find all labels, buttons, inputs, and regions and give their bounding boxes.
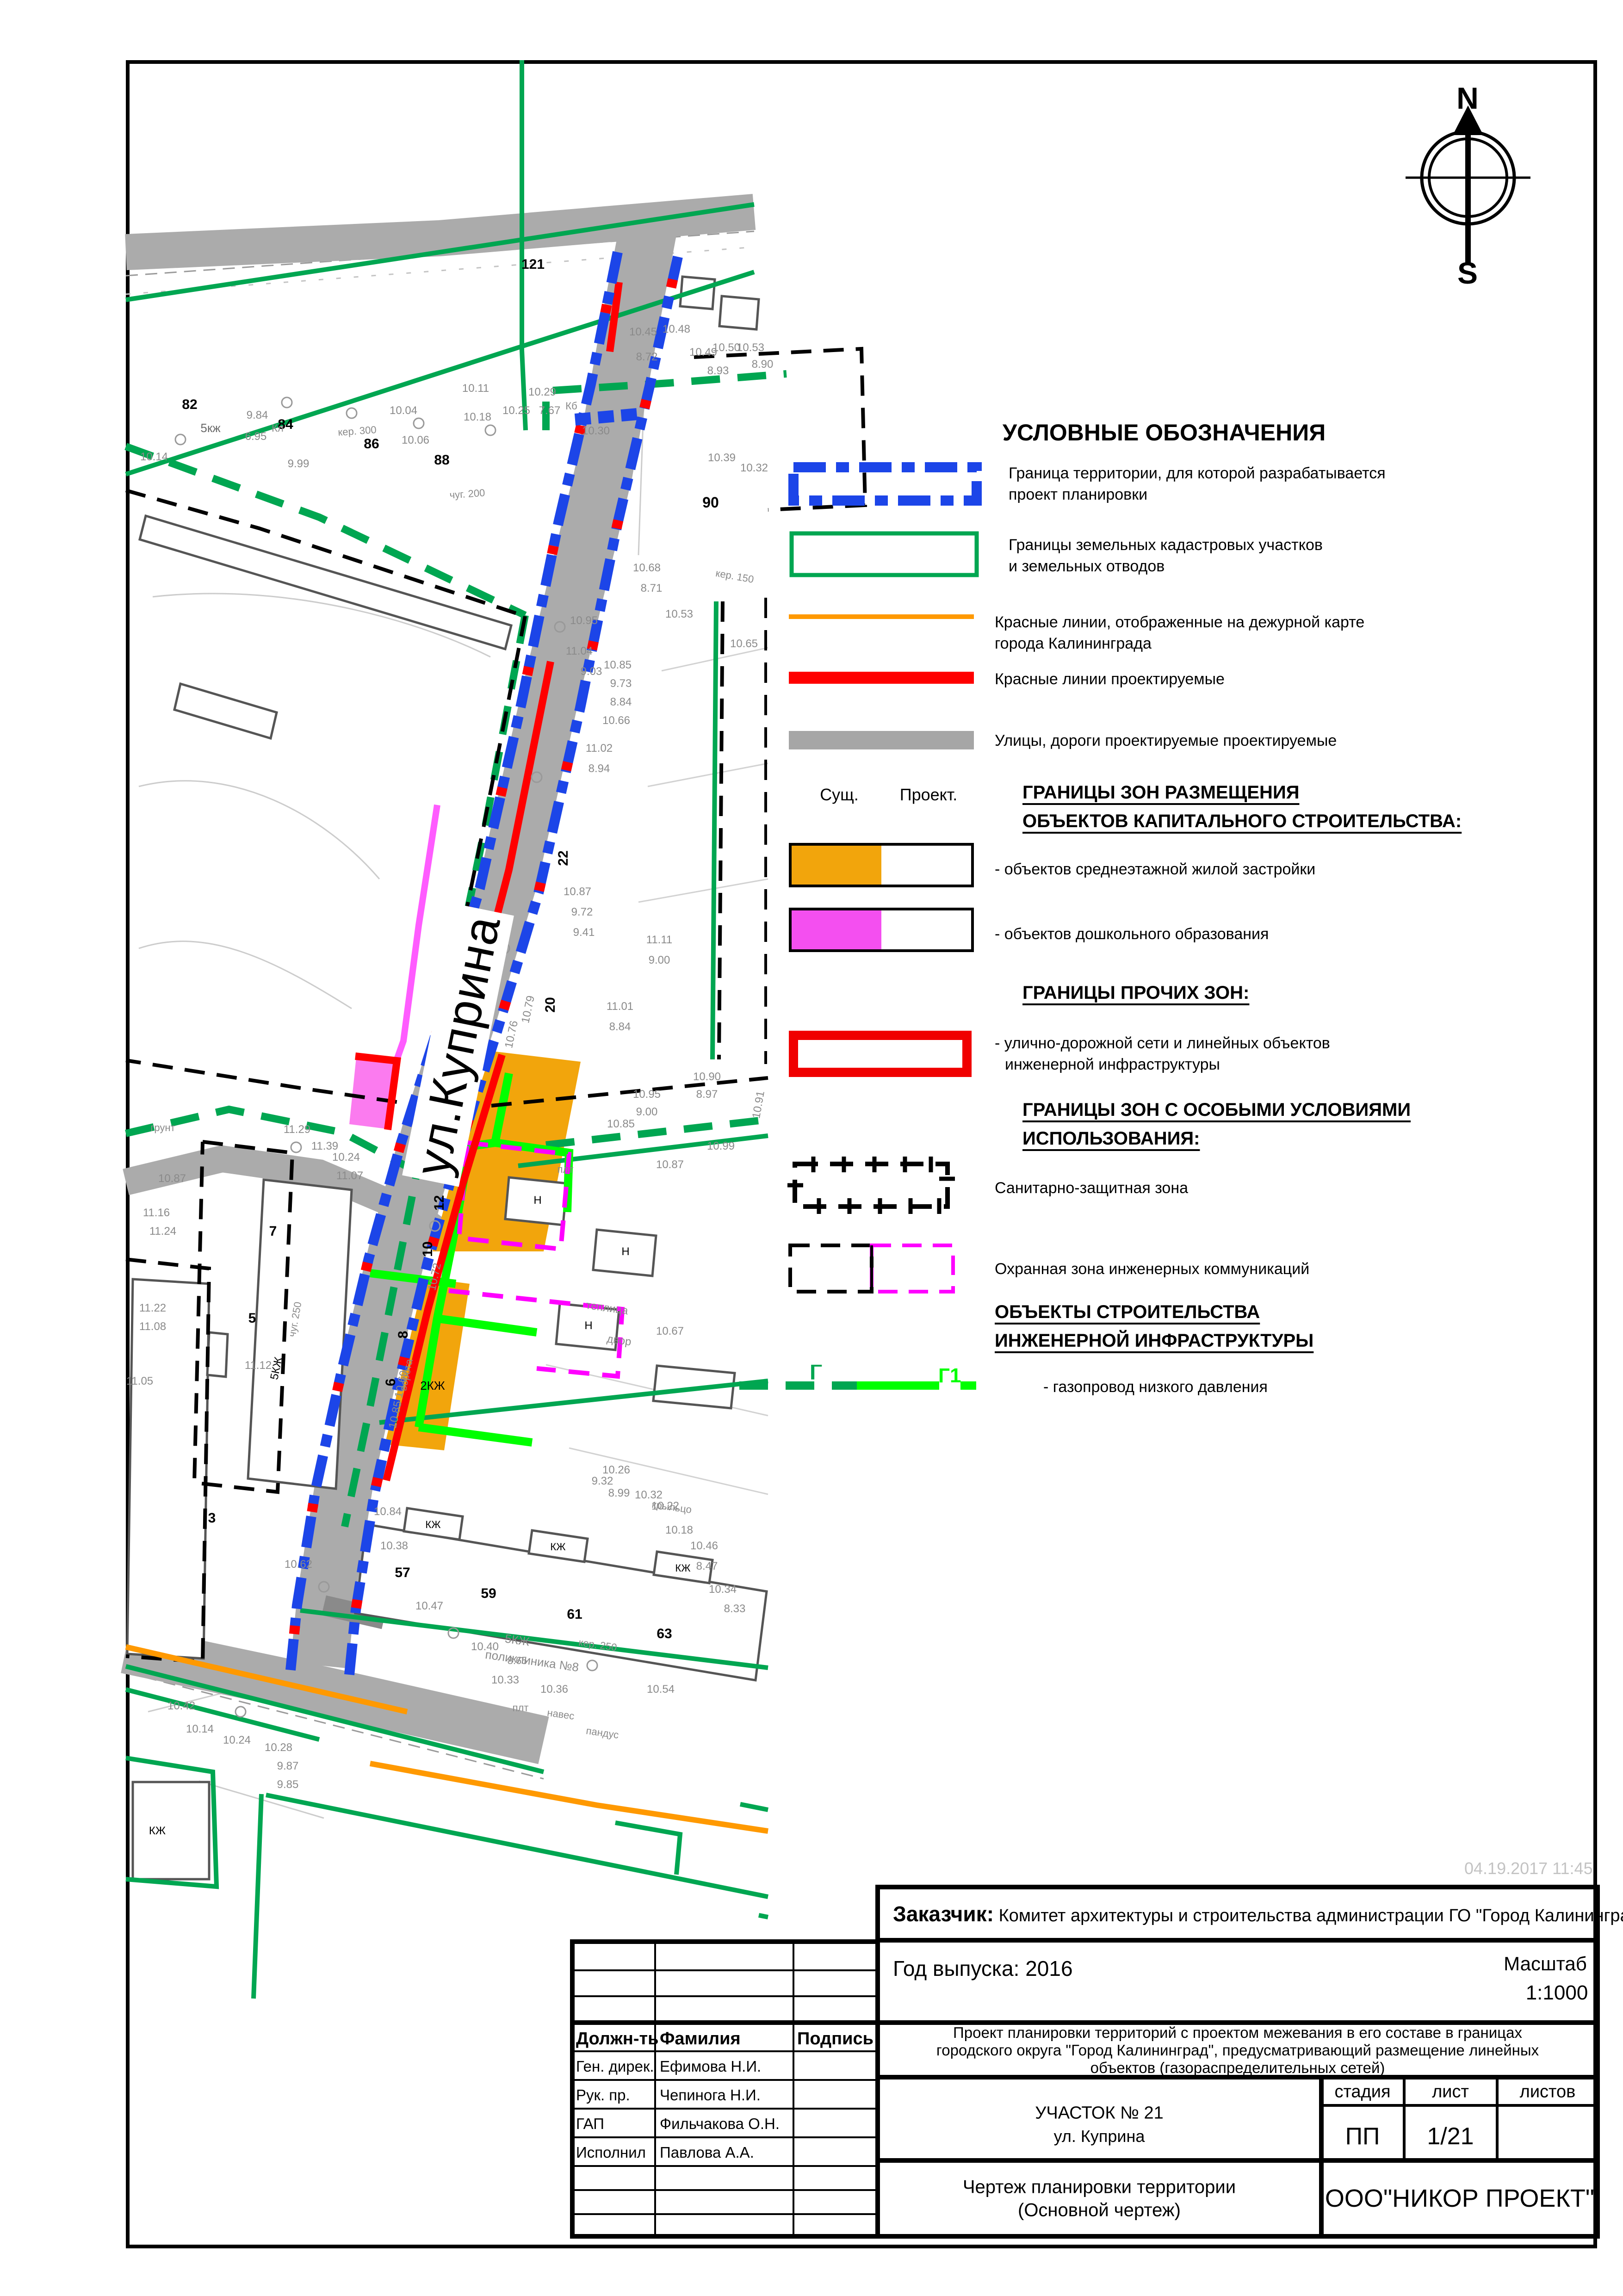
stage-header: стадия [1334,2082,1390,2102]
map-label: 10.90 [693,1071,721,1083]
customer-value: Комитет архитектуры и строительства адми… [999,1906,1623,1925]
legend-section-other: ГРАНИЦЫ ПРОЧИХ ЗОН: [1022,978,1249,1007]
map-label: 11.07 [336,1170,363,1182]
map-label: 8.33 [724,1603,746,1615]
map-label: 8.93 [707,365,729,377]
map-label: 11.01 [607,1001,633,1012]
plot-timestamp: 04.19.2017 11:45 [1464,1859,1593,1878]
legend-item-roads: Улицы, дороги проектируемые проектируемы… [995,730,1337,751]
map-label: 88 [434,453,449,467]
map-label: кер. 300 [338,425,377,438]
staff-header-signature: Подпись [797,2029,873,2049]
map-label: 10.28 [265,1742,292,1753]
legend-section-special: ГРАНИЦЫ ЗОН С ОСОБЫМИ УСЛОВИЯМИИСПОЛЬЗОВ… [1022,1095,1411,1153]
map-label: Н [621,1246,629,1257]
territory-boundary-swatch [788,462,982,506]
map-label: 10.99 [707,1141,735,1152]
gas-existing-label: Г [810,1365,822,1385]
map-label: 8 [396,1331,410,1339]
legend-section-capital: ГРАНИЦЫ ЗОН РАЗМЕЩЕНИЯОБЪЕКТОВ КАПИТАЛЬН… [1022,778,1462,835]
map-label: 8.97 [696,1089,718,1100]
compass-south-label: S [1457,258,1478,288]
compass-north-label: N [1456,83,1479,113]
magenta-line [396,805,437,1062]
year-label: Год выпуска: 2016 [893,1956,1073,1981]
map-label: 11.16 [143,1207,170,1219]
map-label: 5 [248,1312,256,1325]
stage-value: ПП [1345,2123,1380,2150]
map-label: 10.87 [656,1159,684,1170]
map-label: 8.72 [636,352,658,363]
map-label: 11.22 [139,1303,166,1314]
compass-icon [1388,69,1573,301]
map-label: 10.14 [186,1724,214,1735]
map-label: 10.62 [285,1559,312,1570]
customer-label: Заказчик: [893,1902,994,1926]
sheets-header: листов [1520,2082,1576,2102]
staff-row-position: Ген. дирек. [576,2058,654,2075]
map-label: 63 [657,1627,672,1641]
map-label: 10.53 [737,342,764,353]
map-label: 61 [567,1608,582,1621]
map-label: 11.02 [586,743,613,754]
map-label: 10.40 [471,1641,499,1652]
legend-section-objects: ОБЪЕКТЫ СТРОИТЕЛЬСТВАИНЖЕНЕРНОЙ ИНФРАСТР… [995,1298,1313,1355]
map-label: 10.04 [390,405,417,416]
map-label: грунт [150,1123,175,1133]
map-label: 86 [364,437,379,451]
map-label: 121 [521,258,545,272]
map-label: 10.18 [665,1525,693,1536]
map-label: 10.84 [374,1506,402,1517]
map-label: 10 [421,1241,435,1256]
map-label: 10.45 [629,327,657,338]
map-label: 10.24 [223,1735,251,1746]
map-label: КЖ [425,1520,440,1530]
map-label: 7.67 [539,405,561,416]
map-label: 10.95 [633,1089,661,1100]
map-label: КЖ [149,1826,166,1837]
map-label: 3 [208,1511,216,1525]
map-label: 10.36 [540,1684,568,1695]
map-label: 10.33 [491,1675,519,1686]
map-label: 11.39 [311,1141,338,1152]
map-label: 9.84 [247,410,268,421]
red-line-existing-swatch [789,614,974,619]
map-label: 10.65 [730,638,758,650]
map-label: 90 [702,495,719,510]
legend-title: УСЛОВНЫЕ ОБОЗНАЧЕНИЯ [1003,419,1326,446]
staff-row-name: Чепинога Н.И. [660,2086,761,2104]
map-label: Кб [565,401,577,411]
map-label: Кл [272,423,284,433]
legend-item-sanitary: Санитарно-защитная зона [995,1177,1188,1199]
map-label: 10.67 [656,1326,684,1337]
map-label: 10.11 [462,383,489,394]
map-label: плт [558,1164,574,1175]
map-label: 10.26 [602,1465,630,1476]
legend-item-territory: Граница территории, для которой разрабат… [1009,463,1386,505]
map-label: 9.99 [288,458,310,470]
staff-row-position: Исполнил [576,2144,646,2161]
map-label: 10.87 [564,886,591,897]
staff-row-position: ГАП [576,2115,604,2133]
map-label: 10.14 [140,452,168,463]
map-label: 11.24 [149,1226,176,1237]
map-label: 11.08 [139,1321,166,1332]
map-label: 10.95 [570,615,598,626]
map-label: 59 [481,1587,496,1601]
map-label: 10.48 [663,324,690,335]
red-line-projected-swatch [789,672,974,684]
map-label: чуг. 200 [449,488,485,500]
map-label: КЖ [675,1563,690,1573]
map-label: 7 [269,1225,277,1238]
drawing-title-1: Чертеж планировки территории [963,2177,1236,2198]
map-label: 11.12 [245,1360,272,1371]
staff-row-name: Ефимова Н.И. [660,2058,761,2075]
scale-label: Масштаб [1504,1953,1587,1975]
map-label: 10.25 [502,405,530,416]
map-label: 10.29 [528,387,556,398]
map-label: плт [513,1703,529,1713]
map-label: 9.03 [581,666,602,677]
legend-item-protection: Охранная зона инженерных коммуникаций [995,1258,1309,1280]
map-label: Н [584,1320,592,1331]
sanitary-zone-swatch [787,1156,962,1216]
midrise-zone-swatch [789,843,974,887]
map-label: 8.65 [508,1656,527,1666]
staff-row-name: Фильчакова О.Н. [660,2115,780,2133]
map-label: 22 [557,850,570,866]
legend-col-projected: Проект. [900,786,958,803]
map-label: 9.73 [610,678,632,689]
map-label: 8.84 [610,697,632,708]
legend-item-redline-existing: Красные линии, отображенные на дежурной … [995,612,1364,654]
legend-col-existing: Сущ. [820,786,859,803]
map-label: 11.29 [284,1124,310,1135]
map-label: 10.38 [380,1541,408,1552]
map-label: 5КЖ [504,1632,531,1647]
map-label: 11.04 [566,646,593,657]
map-label: 9.32 [592,1476,613,1487]
gas-pipeline-swatch: Г Г1 [736,1365,1059,1406]
legend-item-gas: - газопровод низкого давления [1043,1376,1268,1398]
map-label: 11.05 [126,1376,153,1387]
map-label: 10.24 [332,1152,360,1163]
map-label: 12 [433,1195,446,1210]
map-label: 2КЖ [420,1380,445,1392]
map-label: 10.85 [604,660,632,671]
cadastral-swatch [788,530,982,578]
map-label: 8.94 [588,763,610,774]
map-label: 8.99 [608,1488,630,1499]
staff-header-name: Фамилия [660,2029,741,2049]
map-label: 5кж [200,422,220,434]
map-label: 10.87 [158,1173,186,1184]
legend-item-cadastral: Границы земельных кадастровых участкови … [1009,534,1323,577]
map-label: 9.85 [277,1779,299,1790]
gas-projected-label: Г1 [938,1365,961,1387]
preschool-zone-swatch [789,908,974,952]
map-label: 10.47 [415,1601,443,1612]
map-label: 10.66 [602,715,630,726]
legend-item-midrise: - объектов среднеэтажной жилой застройки [995,859,1315,880]
map-label: 9.87 [277,1761,299,1772]
legend-item-redline-projected: Красные линии проектируемые [995,668,1225,690]
map-label: 10.32 [740,463,768,474]
planning-drawing-page: { "page": {"timestamp": "04.19.2017 11:4… [0,0,1623,2296]
map-label: 10.30 [582,426,610,437]
roads-swatch [789,731,974,749]
map-label: 10.34 [709,1584,737,1595]
map-label: 8.47 [696,1561,718,1572]
map-label: 10.53 [665,609,693,620]
map-label: 20 [544,997,558,1012]
map-label: КЖ [550,1542,565,1552]
map-label: 9.00 [636,1107,658,1118]
map-label: 8.90 [752,359,774,370]
map-label: 82 [182,398,197,412]
map-label: 10.46 [690,1541,718,1552]
street-network-swatch [789,1031,972,1077]
map-label: 9.72 [571,907,593,918]
sheet-value: 1/21 [1427,2123,1474,2150]
map-label: 10.54 [647,1684,675,1695]
sheet-header: лист [1432,2082,1469,2102]
site-street-label: ул. Куприна [1054,2127,1145,2146]
project-description: Проект планировки территорий с проектом … [936,2024,1539,2077]
map-label: 8.71 [641,583,663,594]
map-label: 9.41 [573,927,595,938]
map-label: 9.00 [649,955,670,966]
drawing-title-2: (Основной чертеж) [1018,2200,1181,2221]
map-label: 6.95 [245,431,267,442]
company-name: ООО"НИКОР ПРОЕКТ" [1325,2184,1594,2213]
staff-header-position: Должн-ть [576,2029,658,2049]
map-label: 11.11 [646,934,673,946]
legend-item-street-network: - улично-дорожной сети и линейных объект… [995,1033,1330,1075]
map-label: 10.06 [402,435,429,446]
site-label: УЧАСТОК № 21 [1035,2104,1164,2123]
map-label: 10.68 [633,563,661,574]
map-label: 10.18 [464,412,491,423]
map-label: 10.85 [607,1119,635,1130]
utility-protection-swatch [787,1241,962,1296]
staff-row-name: Павлова А.А. [660,2144,754,2161]
map-label: 57 [395,1566,410,1580]
map-label: 10.39 [708,452,736,464]
map-label: 10.42 [167,1701,195,1712]
map-label: 8.84 [609,1021,631,1033]
scale-value: 1:1000 [1526,1981,1588,2005]
legend-item-preschool: - объектов дошкольного образования [995,923,1269,945]
staff-row-position: Рук. пр. [576,2086,630,2104]
map-label: Н [533,1195,541,1206]
